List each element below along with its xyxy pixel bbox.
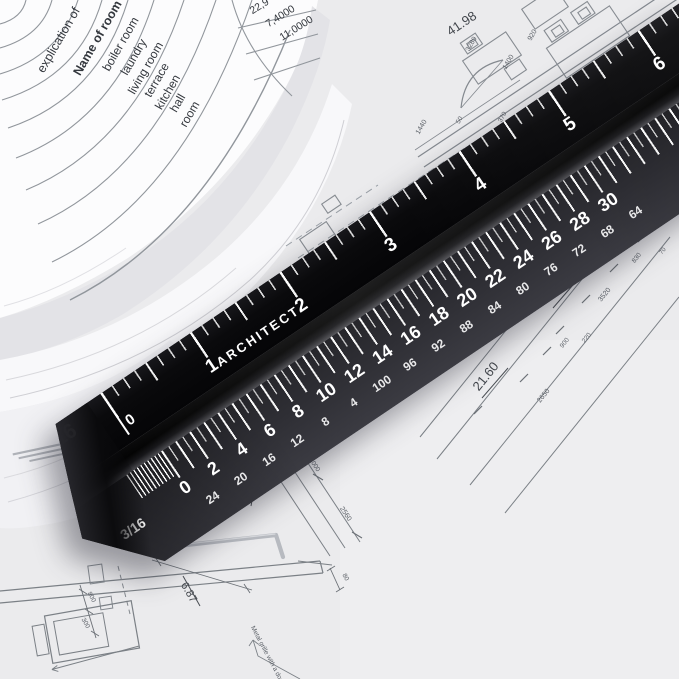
product-photo-scene: explication of Name of room boiler room … xyxy=(0,0,679,679)
architect-scale-ruler: 16 0 ARCHITECT 123456 3/16 0246810121416… xyxy=(64,428,679,603)
